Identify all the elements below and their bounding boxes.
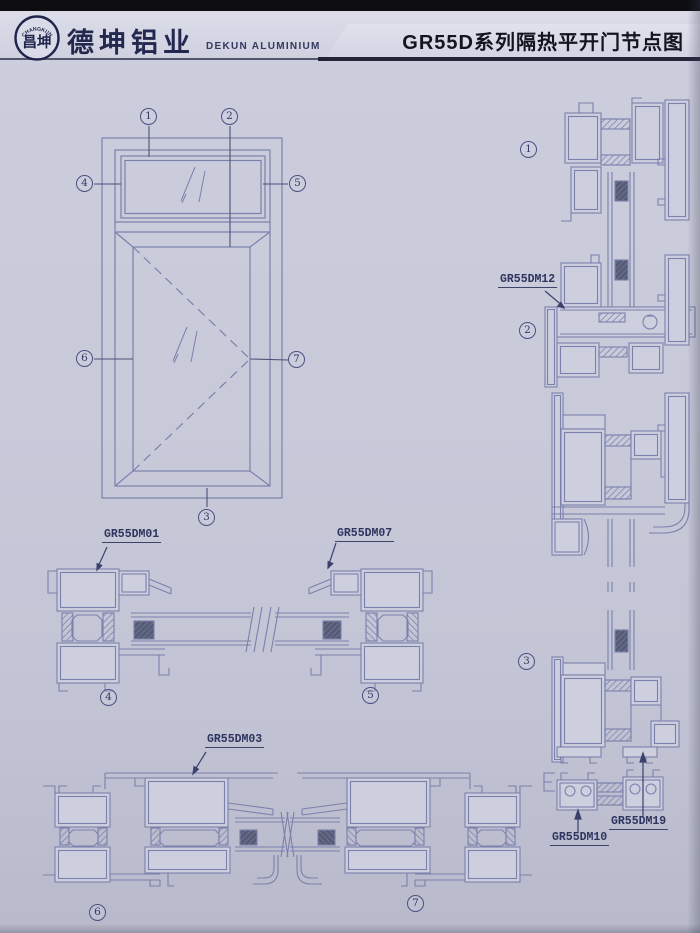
callout-3-section: 3 (518, 653, 535, 670)
part-label-gr55dm12: GR55DM12 (498, 273, 557, 288)
scan-bottom-shadow (0, 924, 700, 933)
callout-6-section: 6 (89, 904, 106, 921)
part-label-leaders (193, 752, 206, 774)
section-4-5-details (35, 525, 445, 710)
part-label-gr55dm03: GR55DM03 (205, 733, 264, 748)
elevation-leader-lines (94, 126, 288, 507)
company-name: 德坤铝业 (67, 21, 195, 60)
glass-section-4 (131, 607, 262, 652)
part-label-gr55dm01: GR55DM01 (102, 528, 161, 543)
callout-5-elevation: 5 (289, 175, 306, 192)
part-label-gr55dm07: GR55DM07 (335, 527, 394, 542)
callout-7-section: 7 (407, 895, 424, 912)
page-title-band: GR55D系列隔热平开门节点图 (326, 24, 700, 57)
callout-4-elevation: 4 (76, 175, 93, 192)
section-1-profile (561, 98, 689, 221)
callout-5-section: 5 (362, 687, 379, 704)
callout-6-elevation: 6 (76, 350, 93, 367)
company-logo: CHANGKUN 昌坤 (13, 14, 61, 62)
glass-section-5 (263, 607, 349, 652)
logo-characters: 昌坤 (23, 33, 52, 51)
page-title: GR55D系列隔热平开门节点图 (402, 26, 700, 55)
section-3-profile (552, 657, 679, 763)
threshold-profile (544, 770, 663, 810)
part-label-leaders (97, 543, 336, 570)
scanned-drawing-page: { "header": { "logo_arc": "CHANGKUN", "l… (0, 0, 700, 933)
callout-2-section: 2 (519, 322, 536, 339)
section-6-7-details (35, 735, 540, 920)
door-elevation-drawing (70, 95, 310, 535)
company-name-en: DEKUN ALUMINIUM (206, 41, 321, 52)
glass-with-break (608, 519, 634, 670)
part-label-gr55dm19: GR55DM19 (609, 815, 668, 830)
section-2-lower-profile (552, 393, 689, 555)
part-label-gr55dm10: GR55DM10 (550, 831, 609, 846)
callout-7-elevation: 7 (288, 351, 305, 368)
callout-3-elevation: 3 (198, 509, 215, 526)
section-6-frame-profile (43, 786, 160, 886)
callout-2-elevation: 2 (221, 108, 238, 125)
title-band-underline (318, 57, 700, 61)
section-6-leaf-profile (105, 773, 294, 886)
callout-1-elevation: 1 (140, 108, 157, 125)
scan-top-black-bar (0, 0, 700, 11)
callout-4-section: 4 (100, 689, 117, 706)
glass-upper (608, 172, 634, 307)
callout-1-section: 1 (520, 141, 537, 158)
